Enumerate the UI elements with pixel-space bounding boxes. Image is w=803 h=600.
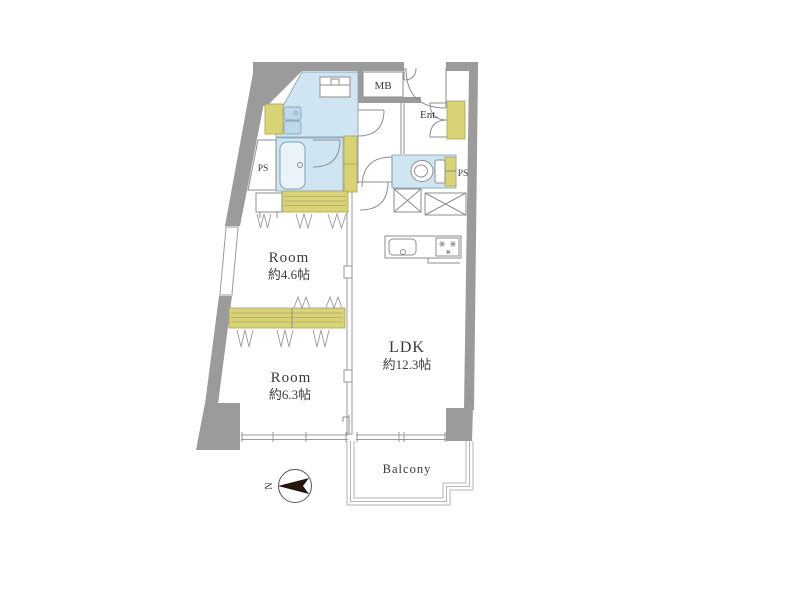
ldk-door-arc: [360, 182, 388, 210]
room-b-size: 約6.3帖: [269, 387, 311, 402]
washroom-door-arc: [358, 110, 384, 136]
room-a-size: 約4.6帖: [268, 267, 310, 282]
room-b-name: Room: [271, 370, 312, 386]
wall-top: [253, 62, 404, 71]
pipe-shaft-left-label: PS: [258, 164, 269, 174]
linen-cabinet-bottom: [344, 164, 357, 192]
kitchen: [385, 236, 461, 263]
wall-right: [464, 71, 478, 410]
shoe-cabinet: [447, 101, 465, 139]
compass: N: [264, 470, 312, 503]
wall-center: [347, 191, 352, 434]
desk-legs: [260, 212, 277, 218]
shoe-cabinet-arc-bottom: [430, 120, 447, 137]
desk-counter: [256, 193, 282, 212]
wall-center-pocket-1: [344, 266, 352, 278]
hall-doors: [358, 110, 388, 210]
pipe-shaft-right-label: PS: [458, 169, 469, 179]
closet-strip-middle: [229, 308, 345, 328]
wall-bottom-left-block: [196, 403, 240, 450]
washer-counter: [265, 104, 283, 134]
wall-bottom-right-block: [446, 408, 473, 441]
entrance-label: Ent.: [420, 109, 438, 121]
washer-unit-bottom: [284, 121, 301, 134]
wall-top-right: [446, 62, 478, 71]
toilet-tank: [435, 160, 445, 183]
linen-cabinet-top: [344, 136, 357, 164]
storage-strip-top: [282, 191, 348, 212]
wall-left-diagonal-lower: [205, 296, 232, 404]
void-boxes: [394, 189, 466, 215]
kitchen-counter-step: [428, 258, 460, 263]
vanity-sink: [320, 77, 350, 97]
ldk-name: LDK: [389, 339, 425, 356]
floorplan-canvas: N Room 約4.6帖 Room 約6.3帖 LDK 約12.3帖 Balco…: [0, 0, 803, 600]
kitchen-sink: [389, 239, 416, 255]
room-a-name: Room: [269, 250, 310, 266]
ldk-window: [356, 432, 446, 442]
compass-north-label: N: [264, 482, 275, 489]
wall-mb-bottom: [357, 97, 421, 103]
wall-center-pocket-2: [344, 370, 352, 382]
meter-box-label: MB: [374, 80, 391, 92]
floorplan-svg: N Room 約4.6帖 Room 約6.3帖 LDK 約12.3帖 Balco…: [0, 0, 803, 600]
bathtub: [280, 142, 305, 189]
washer-unit-top: [284, 107, 301, 120]
diagonal-window-band: [219, 226, 239, 296]
room-b-window: [241, 432, 348, 442]
balcony-label: Balcony: [383, 462, 432, 476]
ldk-size: 約12.3帖: [383, 357, 432, 372]
